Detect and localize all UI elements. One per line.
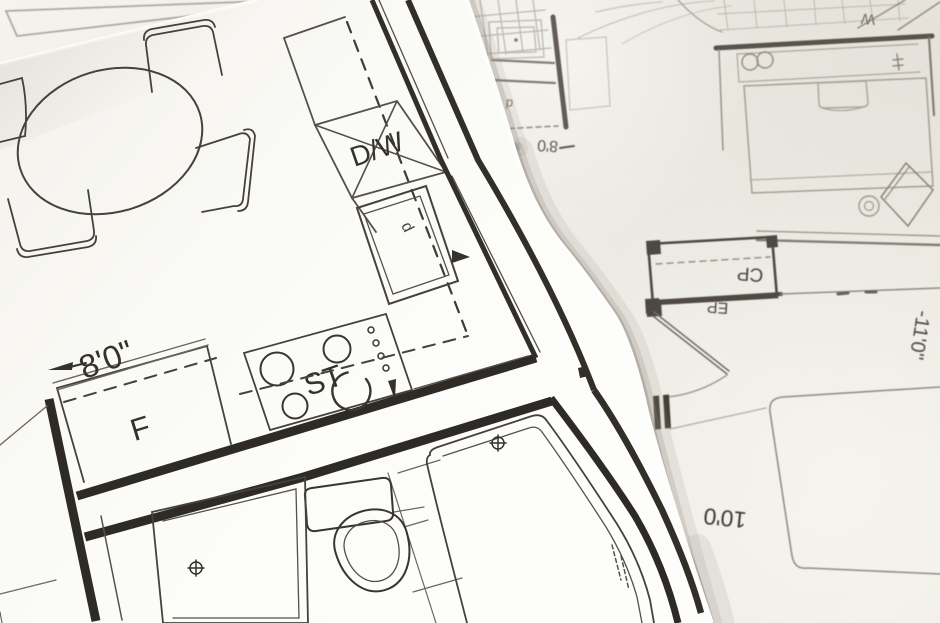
svg-text:W: W xyxy=(860,10,876,28)
svg-text:EP: EP xyxy=(706,298,728,316)
svg-text:CP: CP xyxy=(736,262,764,285)
svg-text:8'0: 8'0 xyxy=(537,136,559,154)
svg-text:10'0: 10'0 xyxy=(702,503,747,533)
